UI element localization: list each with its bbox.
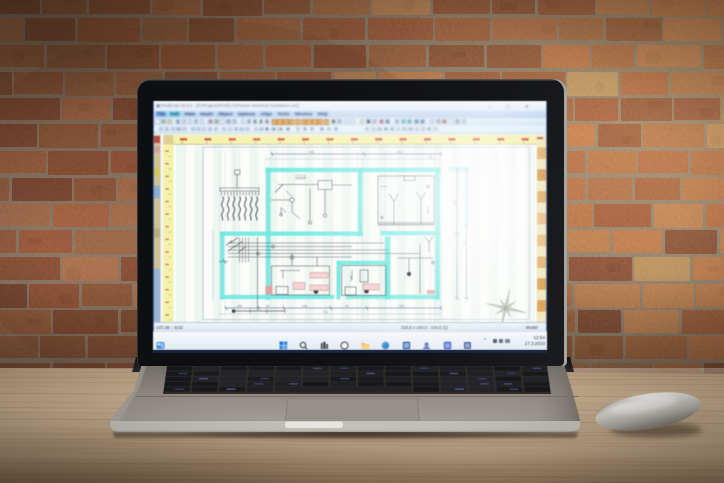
svg-text:70: 70 [429,155,433,159]
svg-text:244: 244 [397,150,402,154]
svg-text:711: 711 [323,310,328,314]
svg-text:194: 194 [399,304,404,308]
svg-text:700: 700 [453,200,457,205]
svg-text:25: 25 [266,304,270,308]
svg-text:445: 445 [309,150,314,154]
svg-text:711: 711 [463,240,467,245]
svg-text:75: 75 [345,304,349,308]
svg-text:248: 248 [237,304,242,308]
svg-text:140: 140 [302,304,307,308]
